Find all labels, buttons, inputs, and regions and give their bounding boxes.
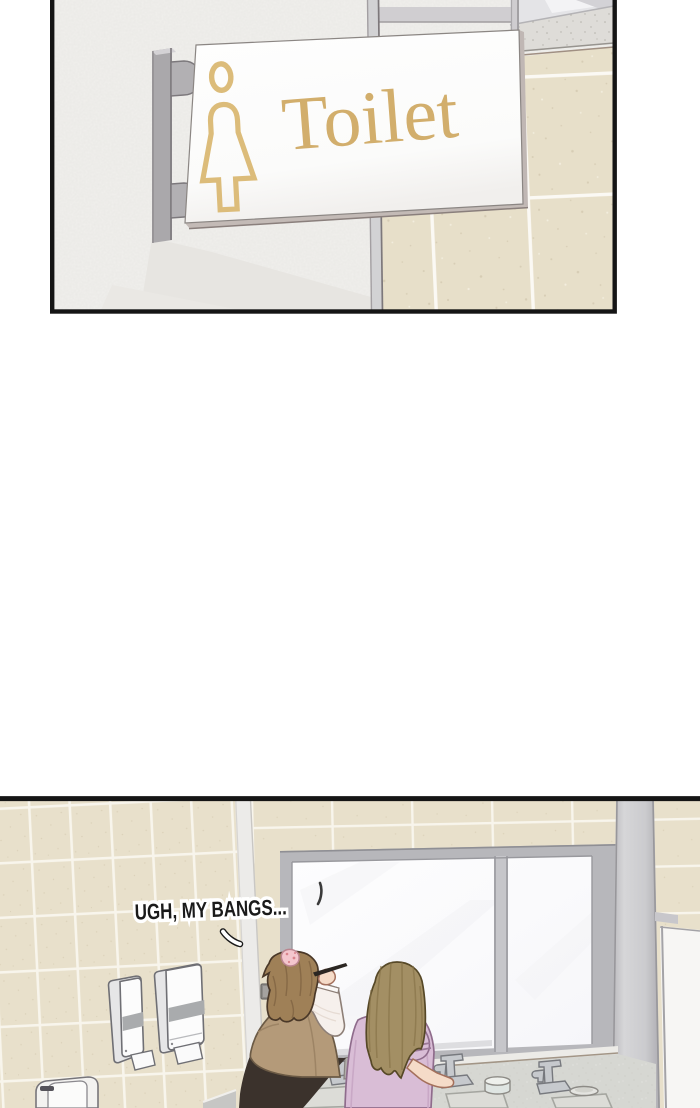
svg-text:UGH, MY BANGS...: UGH, MY BANGS... (134, 894, 287, 924)
svg-text:Toilet: Toilet (279, 70, 461, 167)
